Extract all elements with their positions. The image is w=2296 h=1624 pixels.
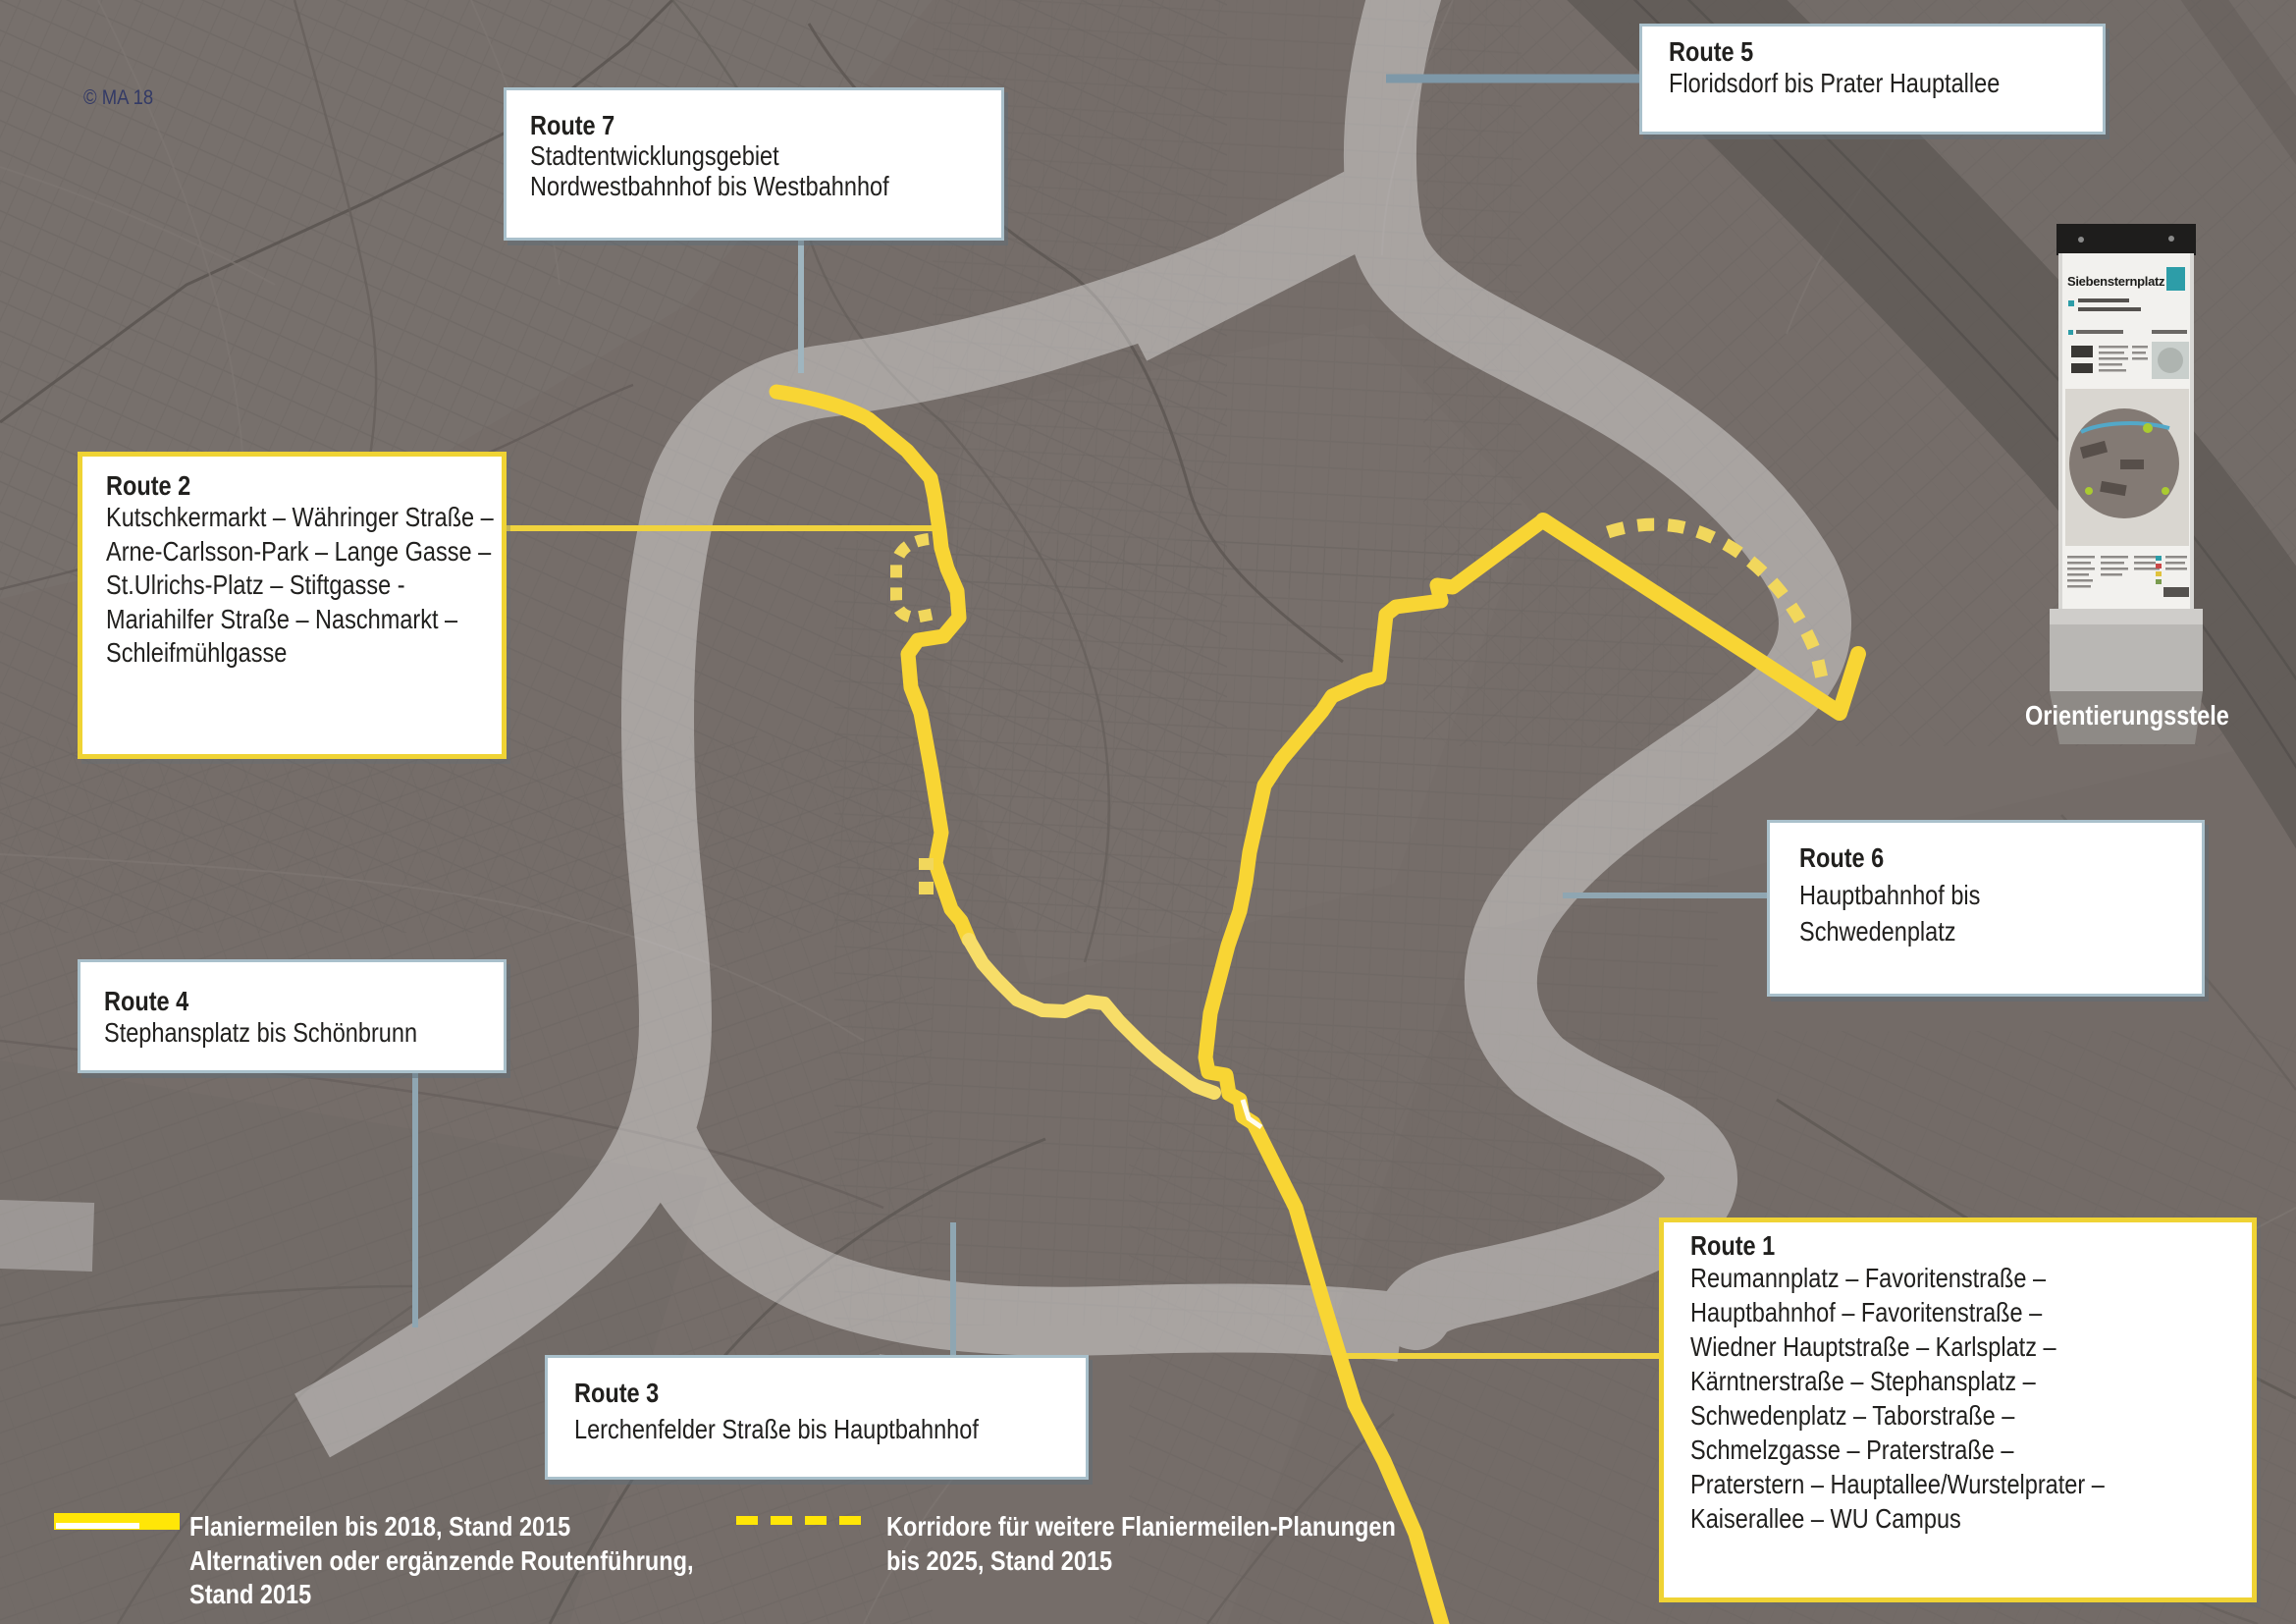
svg-text:Siebensternplatz: Siebensternplatz — [2067, 274, 2165, 289]
